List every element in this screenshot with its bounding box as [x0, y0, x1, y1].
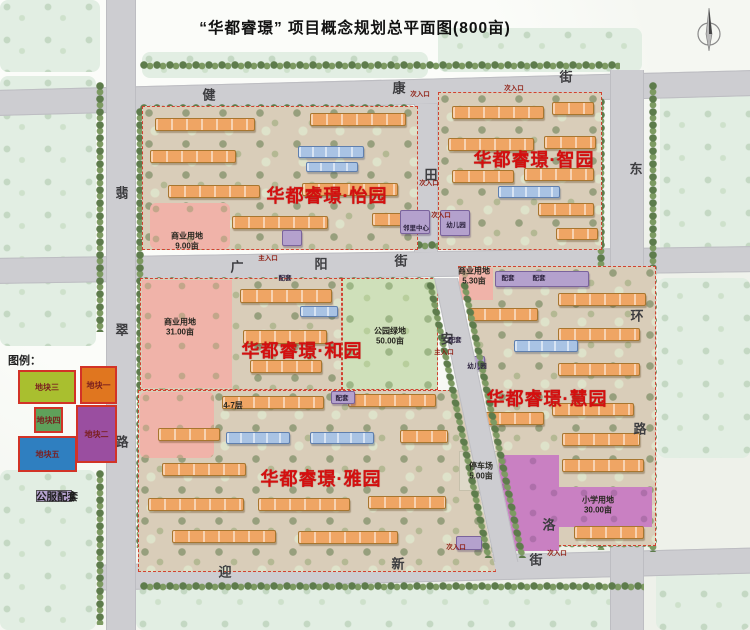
- commercial-area: [140, 392, 214, 458]
- building-row: [310, 113, 406, 126]
- building-row: [155, 118, 255, 131]
- street-name-char: 洛: [542, 515, 555, 534]
- entrance-label: 主入口: [434, 346, 454, 356]
- road-feicui-road: [106, 0, 136, 630]
- tree-row: [140, 581, 644, 592]
- legend-plot-2: 地块一: [80, 366, 117, 404]
- building-row: [400, 430, 448, 443]
- entrance-label: 次入口: [547, 547, 567, 557]
- legend-plot-4: 地块二: [76, 405, 117, 463]
- building-row: [258, 498, 350, 511]
- land-use-label: 商业用地5.30亩: [458, 266, 490, 285]
- street-name-char: 街: [529, 550, 542, 569]
- building-row: [368, 496, 446, 509]
- building-row: [158, 428, 220, 441]
- building-row: [558, 293, 646, 306]
- facility-label: 配套: [502, 272, 515, 282]
- land-use-label: 商业用地9.00亩: [171, 231, 203, 250]
- street-name-char: 街: [394, 251, 407, 270]
- community-name-label: 华都睿璟·雅园: [261, 465, 382, 491]
- facility-label: 配套: [279, 272, 292, 282]
- building-public: [282, 230, 302, 246]
- street-name-char: 广: [230, 257, 243, 276]
- building-row: [162, 463, 246, 476]
- street-name-char: 街: [559, 67, 572, 86]
- legend-plot-label: 地块一: [87, 380, 111, 391]
- entrance-label: 次入口: [504, 82, 524, 92]
- street-name-char: 迎: [218, 562, 231, 581]
- building-row: [172, 530, 276, 543]
- street-name-char: 翠: [115, 320, 128, 339]
- page-title: “华都睿璟” 项目概念规划总平面图(800亩): [0, 16, 710, 38]
- community-name-label: 华都睿璟·和园: [242, 337, 363, 363]
- street-name-char: 环: [630, 306, 643, 325]
- building-row: [240, 289, 332, 303]
- facility-label: 配套: [449, 334, 462, 344]
- site-plan: 健康街广阳街迎新街翡翠路东环路田安洛 华都睿璟·怡园华都睿璟·智园华都睿璟·和园…: [0, 0, 750, 630]
- building-row: [148, 498, 244, 511]
- building-row: [562, 433, 640, 446]
- legend-key-map-items: 地块三地块一地块四地块二地块五: [6, 350, 120, 476]
- building-row: [298, 531, 398, 544]
- legend-plot-label: 地块四: [37, 415, 61, 426]
- building-row: [562, 459, 644, 472]
- legend-plot-1: 地块三: [18, 370, 76, 404]
- building-row: [556, 228, 598, 240]
- building-row: [168, 185, 260, 198]
- building-row: [558, 363, 640, 376]
- north-compass-icon: [694, 6, 724, 52]
- street-name-char: 康: [392, 78, 405, 97]
- building-row: [452, 106, 544, 119]
- building-row: [538, 203, 594, 216]
- legend-plot-label: 地块五: [36, 449, 60, 460]
- building-row: [150, 150, 236, 163]
- land-use-label: 公园绿地50.00亩: [374, 326, 406, 345]
- building-row: [574, 526, 644, 539]
- facility-label: 邻里中心: [403, 222, 429, 232]
- street-name-char: 东: [629, 159, 642, 178]
- land-use-label: 小学用地30.00亩: [582, 495, 614, 514]
- community-name-label: 华都睿璟·怡园: [267, 182, 388, 208]
- entrance-label: 次入口: [431, 209, 451, 219]
- building-row: [298, 146, 364, 158]
- street-name-char: 阳: [314, 254, 327, 273]
- entrance-label: 主入口: [258, 252, 278, 262]
- facility-label: 幼儿园: [446, 219, 466, 229]
- facility-label: 幼儿园: [467, 360, 487, 370]
- tree-row: [140, 60, 620, 71]
- land-use-label: 停车场5.00亩: [469, 461, 493, 480]
- tree-row: [95, 82, 105, 332]
- entrance-label: 次入口: [446, 541, 466, 551]
- land-use-label: 商业用地31.00亩: [164, 317, 196, 336]
- facility-label: 配套: [336, 392, 349, 402]
- building-row: [306, 162, 358, 172]
- street-name-char: 路: [633, 419, 646, 438]
- legend-key-map: 图例： 地块三地块一地块四地块二地块五: [6, 350, 120, 476]
- legend-building-label: 公服配套: [36, 489, 78, 504]
- building-row: [468, 308, 538, 321]
- legend-plot-3: 地块四: [34, 407, 63, 433]
- building-row: [226, 432, 290, 444]
- legend-plot-label: 地块三: [35, 382, 59, 393]
- building-row: [300, 306, 338, 317]
- building-row: [310, 432, 374, 444]
- legend-plot-label: 地块二: [85, 429, 109, 440]
- street-name-char: 健: [202, 85, 215, 104]
- tree-row: [95, 470, 105, 625]
- building-row: [514, 340, 578, 352]
- street-name-char: 新: [391, 554, 404, 573]
- legend-plot-5: 地块五: [18, 436, 77, 472]
- building-row: [232, 216, 328, 229]
- community-name-label: 华都睿璟·智园: [474, 146, 595, 172]
- entrance-label: 次入口: [419, 177, 439, 187]
- building-row: [552, 102, 594, 115]
- land-use-label: 4-7层: [223, 401, 243, 411]
- facility-label: 配套: [533, 272, 546, 282]
- building-row: [498, 186, 560, 198]
- community-name-label: 华都睿璟·慧园: [487, 385, 608, 411]
- street-name-char: 翡: [115, 183, 128, 202]
- entrance-label: 次入口: [410, 88, 430, 98]
- building-row: [348, 394, 436, 407]
